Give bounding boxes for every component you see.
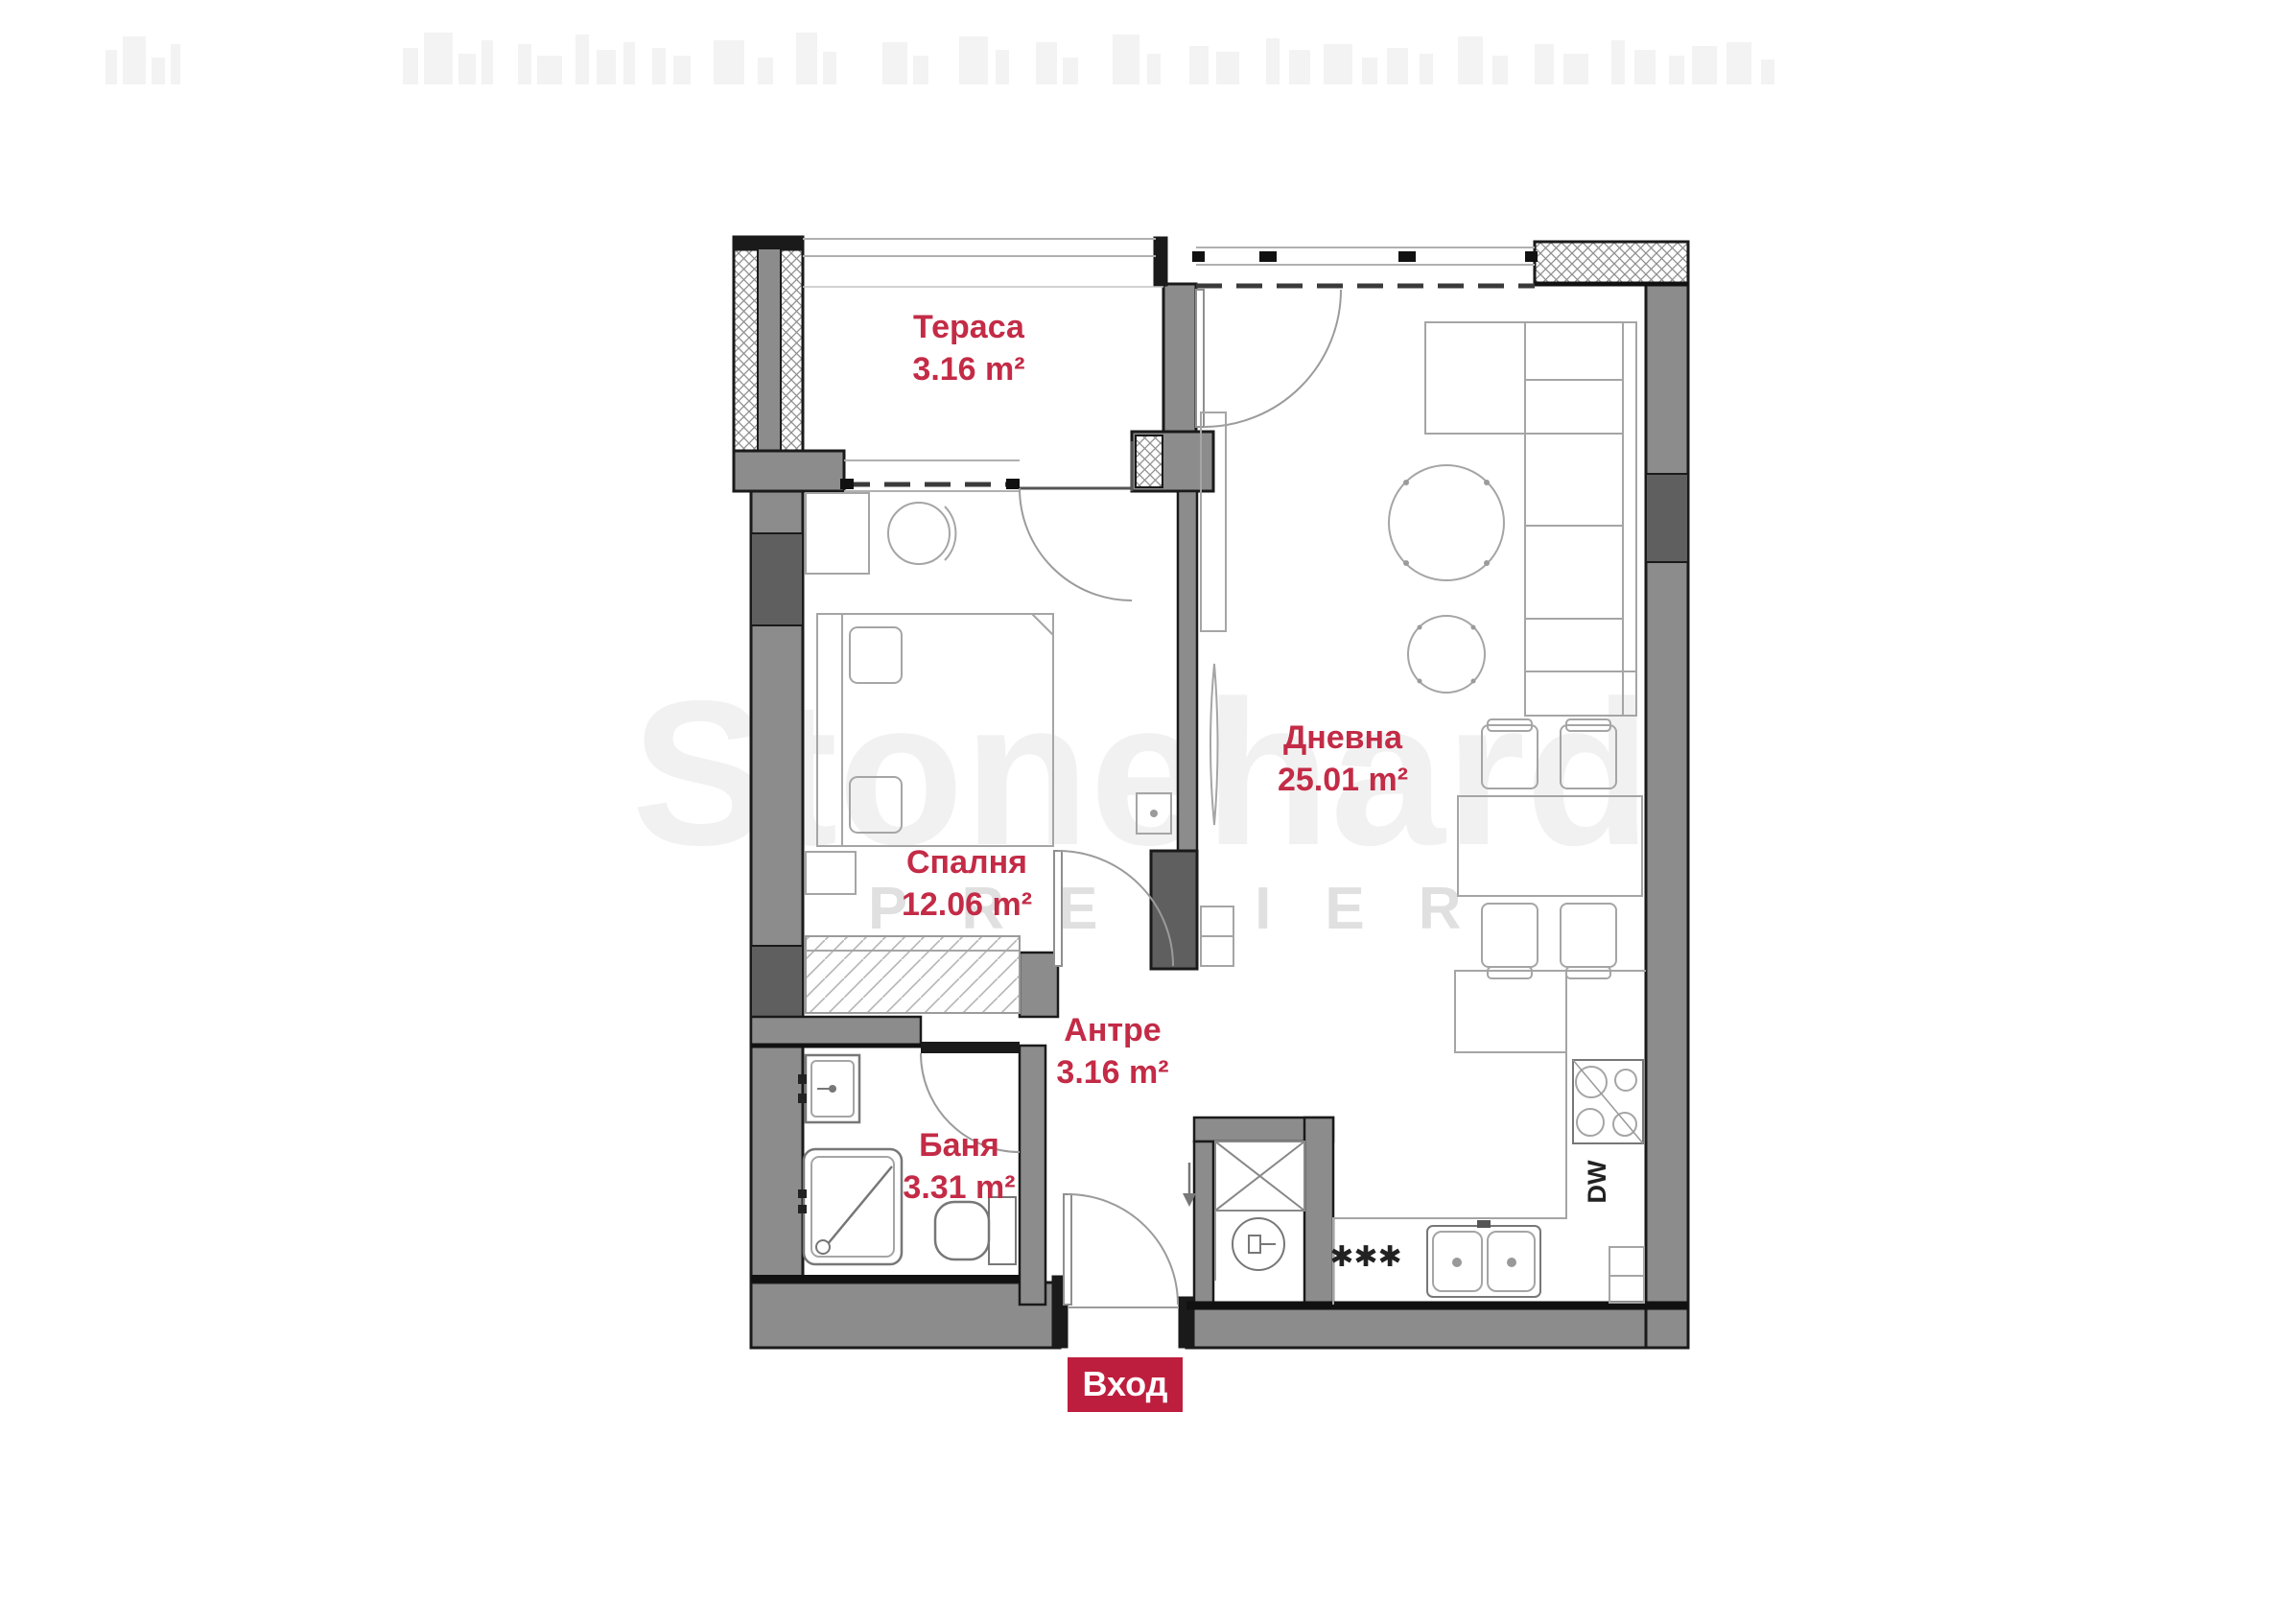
window-tick [1398,251,1416,262]
door-swing-arc [1204,290,1341,427]
kitchen-sink [1427,1220,1540,1297]
wall-top-right [1535,242,1688,284]
wall-junction [734,451,844,491]
room-area: 3.16 m² [1056,1054,1168,1091]
wall-bathroom-top [751,1017,921,1046]
wall-right [1646,242,1688,1348]
wall-terrace-divider [1163,284,1196,432]
room-name: Баня [919,1127,999,1164]
washing-machine [1215,1211,1284,1281]
wall-bottom-left [751,1283,1060,1348]
door-leaf [921,1042,1020,1053]
door-leaf [1196,290,1204,427]
coffee-table-large [1389,465,1504,580]
bathroom-sink [798,1055,859,1122]
city-skyline-watermark [106,33,1774,84]
wall-closet-right [1304,1118,1333,1305]
door-leaf [1054,851,1062,966]
stove [1573,1060,1643,1143]
stove-marks: ✱✱✱ [1329,1241,1401,1273]
room-label-bathroom: Баня 3.31 m² [903,1127,1015,1206]
bedroom-desk [806,493,869,574]
room-area: 3.16 m² [912,351,1024,388]
window-tick [1259,251,1277,262]
wall-closet-left [1194,1142,1213,1305]
room-area: 3.31 m² [903,1169,1015,1206]
entrance-door [1064,1194,1178,1305]
wall-right-column [1646,474,1688,562]
faucet-icon [1477,1220,1491,1228]
wall-left-column [751,946,803,1019]
wall-bathroom-partition [1020,1046,1045,1305]
window-tick [1192,251,1205,262]
kitchen-corner-cabinet [1609,1247,1644,1303]
window-tick [840,479,854,489]
wall-post [1154,237,1167,286]
room-area: 12.06 m² [902,886,1032,923]
shower [798,1149,902,1264]
wall-insulation [1136,435,1162,487]
window-tick [1006,479,1020,489]
room-name: Антре [1064,1012,1161,1048]
dishwasher-label: DW [1583,1160,1611,1203]
door-swing-arc [1020,488,1132,600]
room-name: Дневна [1283,719,1403,756]
room-name: Тераса [913,309,1025,345]
toilet [935,1197,1016,1264]
wall-step [1020,953,1058,1017]
wall-bottom-right [1186,1305,1688,1348]
drain-icon [816,1240,830,1254]
entrance-badge-label: Вход [1082,1364,1167,1403]
room-label-terrace: Тераса 3.16 m² [912,309,1025,388]
room-area: 25.01 m² [1278,762,1408,798]
room-name: Спалня [906,844,1027,881]
storage-shelf [1215,1142,1304,1211]
floor-plan-canvas: Stonehard PREMIER [0,0,2278,1624]
terrace-door [1196,290,1341,427]
room-label-hallway: Антре 3.16 m² [1056,1012,1168,1091]
floor-plan: Stonehard PREMIER [0,0,2278,1624]
entrance-badge: Вход [1068,1357,1183,1412]
balcony-door-bedroom [1020,488,1132,600]
wall-bedroom-partition [1178,491,1197,851]
door-swing-arc [1068,1194,1178,1305]
wardrobe [806,936,1020,1013]
wall-left-column [751,533,803,625]
door-leaf [1064,1194,1071,1305]
bedroom-chair [888,503,955,564]
window-tick [1525,251,1538,262]
